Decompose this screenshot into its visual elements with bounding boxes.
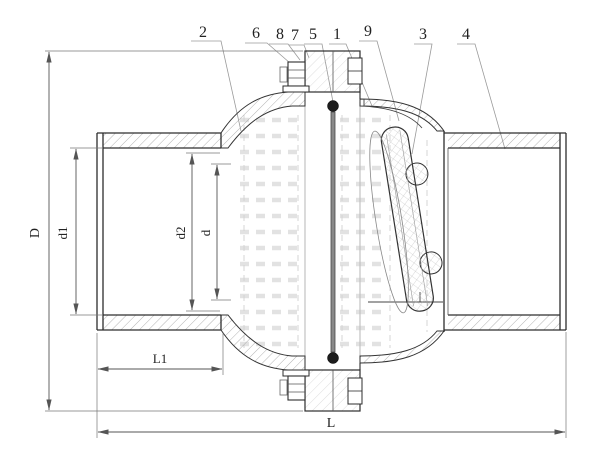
outlet-pipe [444, 131, 566, 332]
dim-label-d: d [198, 229, 213, 236]
callout-label-6: 6 [252, 25, 260, 42]
stem [331, 112, 335, 352]
callout-label-5: 5 [309, 26, 317, 43]
callout-label-2: 2 [199, 24, 207, 41]
drawing-canvas: D d1 d2 d L1 L 2 6 8 7 5 1 9 3 4 [0, 0, 614, 460]
dim-label-d2: d2 [173, 227, 188, 240]
top-flange [280, 51, 362, 92]
washer-bottom [283, 370, 309, 376]
pin-bottom [328, 353, 339, 364]
callout-label-8: 8 [276, 26, 284, 43]
leader-9 [359, 41, 399, 121]
stem-assembly [328, 101, 339, 364]
body-wall-bottom-right [360, 331, 444, 363]
bolt-head-top [288, 62, 305, 86]
dim-label-d1: d1 [55, 227, 70, 240]
body-wall-top-right [360, 99, 444, 131]
pin-top [328, 101, 339, 112]
dim-label-D: D [28, 228, 43, 238]
leader-3 [412, 44, 432, 154]
bolt-head-bottom [288, 376, 305, 400]
leader-8 [269, 44, 300, 60]
washer-top [283, 86, 309, 92]
bottom-flange [280, 370, 362, 411]
callout-label-3: 3 [419, 26, 427, 43]
callout-label-7: 7 [291, 27, 299, 44]
callout-label-4: 4 [462, 26, 470, 43]
dim-label-L: L [327, 416, 336, 431]
callout-label-1: 1 [333, 26, 341, 43]
leader-6 [245, 43, 290, 63]
dim-label-L1: L1 [153, 351, 167, 366]
callout-labels: 2 6 8 7 5 1 9 3 4 [199, 23, 470, 44]
check-valve-sectional-drawing: D d1 d2 d L1 L 2 6 8 7 5 1 9 3 4 [0, 0, 614, 460]
callout-label-9: 9 [364, 23, 372, 40]
